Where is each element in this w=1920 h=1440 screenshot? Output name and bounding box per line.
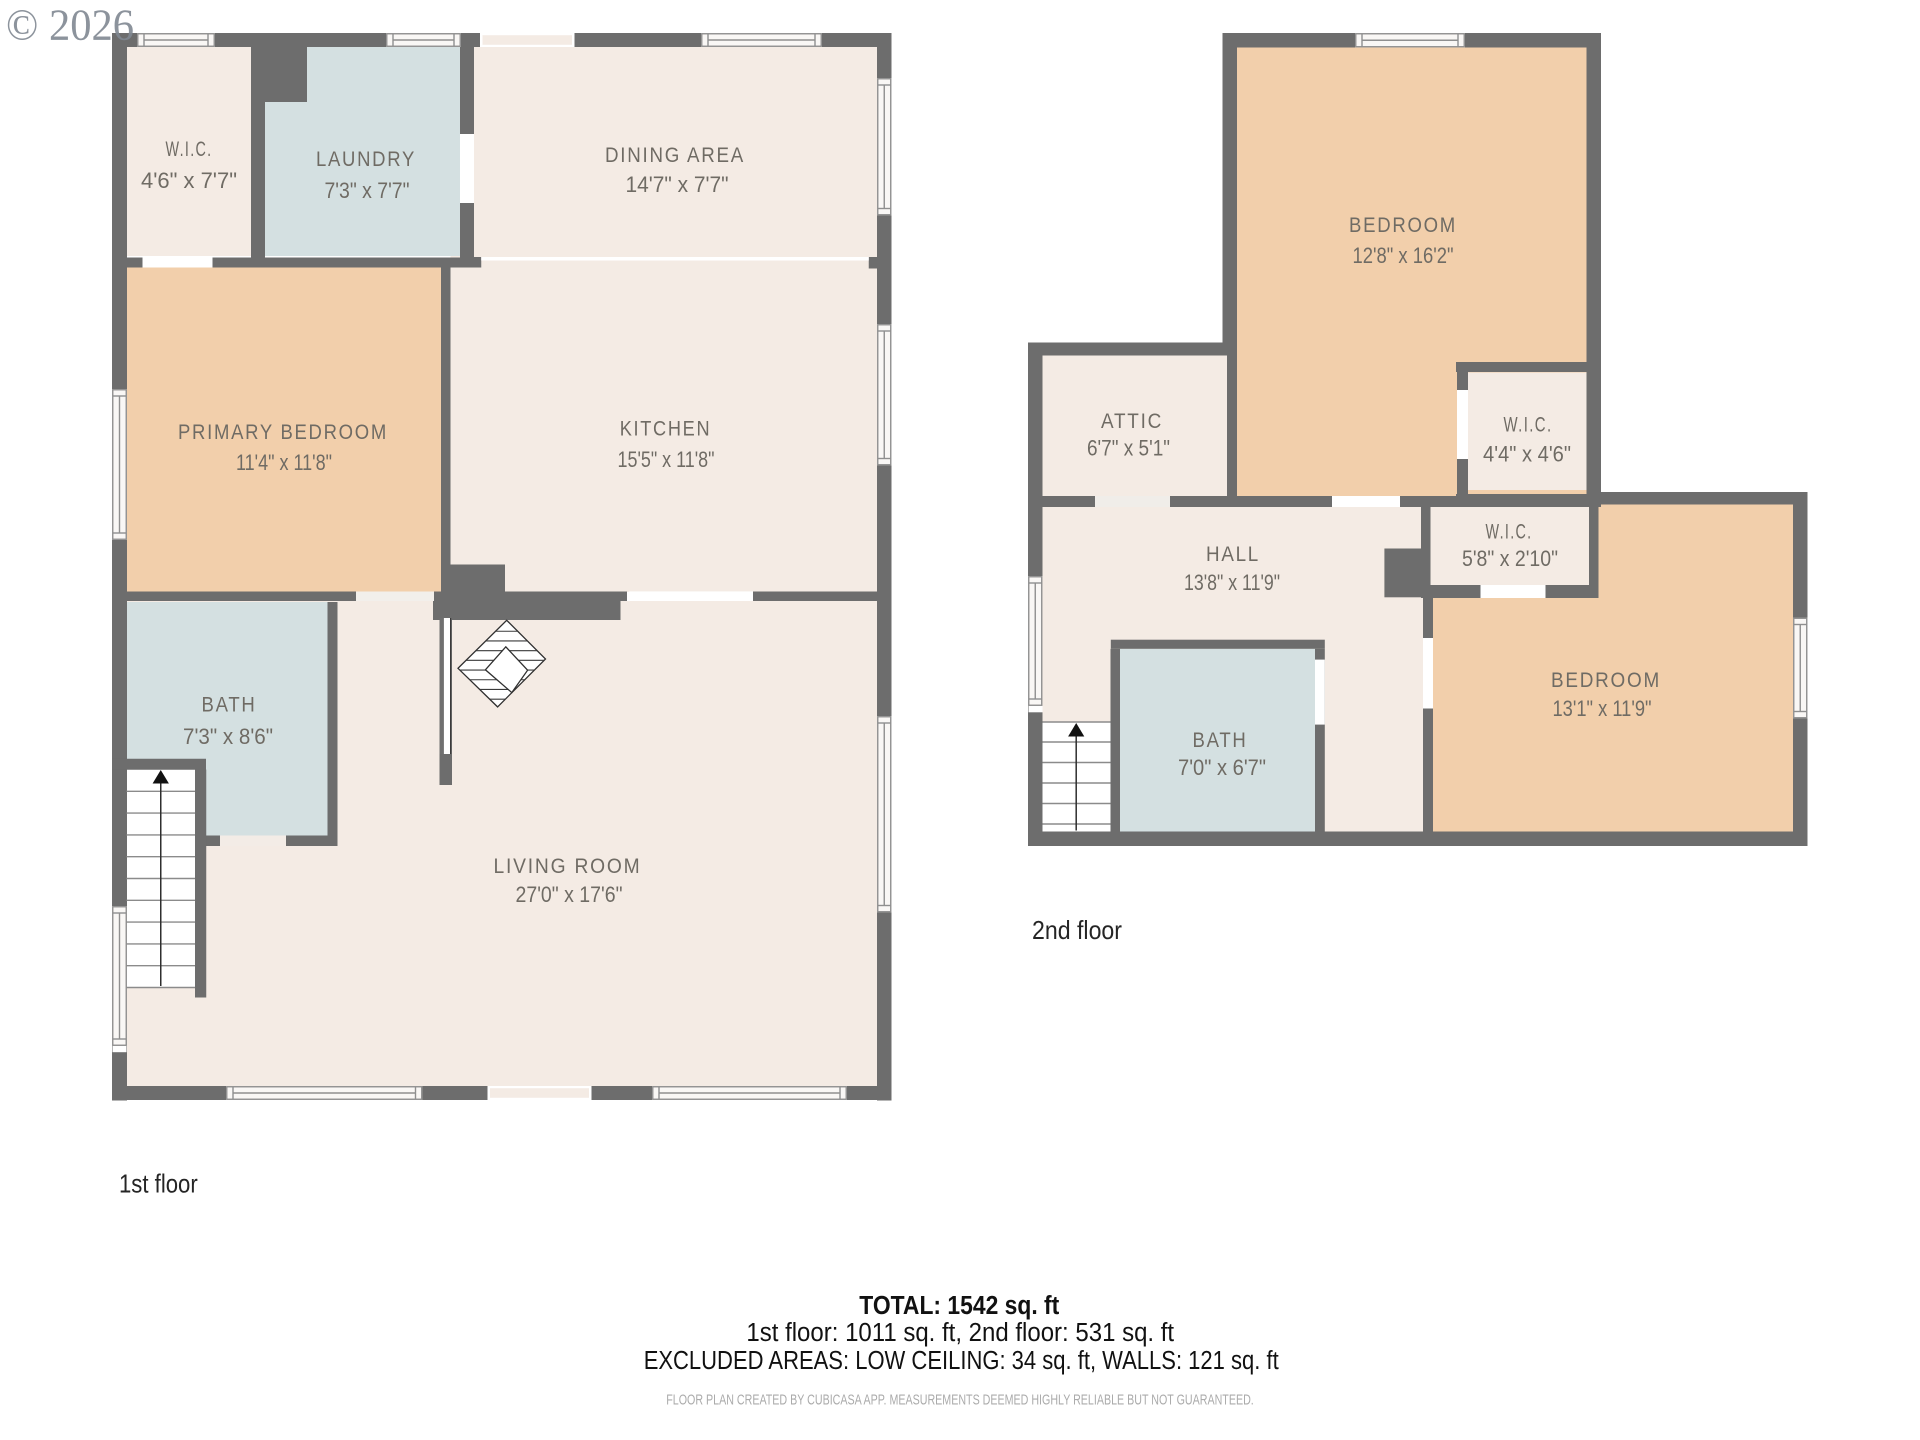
svg-text:W.I.C.: W.I.C. [166,137,213,161]
svg-text:15'5" x 11'8": 15'5" x 11'8" [618,447,715,472]
svg-text:11'4" x 11'8": 11'4" x 11'8" [236,450,332,475]
svg-text:EXCLUDED AREAS: LOW CEILING: 3: EXCLUDED AREAS: LOW CEILING: 34 sq. ft, … [644,1347,1279,1375]
svg-text:1st floor: 1011 sq. ft, 2nd fl: 1st floor: 1011 sq. ft, 2nd floor: 531 s… [746,1319,1174,1347]
svg-text:BATH: BATH [202,693,257,717]
svg-text:4'4" x 4'6": 4'4" x 4'6" [1483,442,1571,467]
svg-text:W.I.C.: W.I.C. [1504,413,1553,437]
svg-text:14'7" x 7'7": 14'7" x 7'7" [626,172,729,197]
svg-text:5'8" x 2'10": 5'8" x 2'10" [1462,546,1558,571]
svg-text:BEDROOM: BEDROOM [1551,668,1661,692]
svg-text:DINING AREA: DINING AREA [605,143,745,167]
svg-text:TOTAL: 1542 sq. ft: TOTAL: 1542 sq. ft [859,1292,1059,1320]
svg-text:4'6" x 7'7": 4'6" x 7'7" [141,168,237,193]
svg-text:W.I.C.: W.I.C. [1486,520,1533,544]
svg-text:HALL: HALL [1206,542,1260,566]
svg-text:ATTIC: ATTIC [1101,409,1163,433]
svg-text:6'7" x 5'1": 6'7" x 5'1" [1087,436,1170,461]
svg-text:13'1" x 11'9": 13'1" x 11'9" [1553,696,1652,721]
svg-text:BATH: BATH [1193,728,1248,752]
svg-text:LIVING ROOM: LIVING ROOM [494,854,642,878]
svg-text:7'3" x 8'6": 7'3" x 8'6" [183,724,273,749]
svg-text:27'0" x 17'6": 27'0" x 17'6" [516,882,623,907]
svg-text:12'8" x 16'2": 12'8" x 16'2" [1353,243,1454,268]
svg-text:2nd floor: 2nd floor [1032,915,1122,945]
svg-text:7'3" x 7'7": 7'3" x 7'7" [325,178,410,203]
svg-text:LAUNDRY: LAUNDRY [316,147,416,171]
svg-text:7'0" x 6'7": 7'0" x 6'7" [1178,755,1266,780]
svg-text:13'8" x 11'9": 13'8" x 11'9" [1184,570,1280,595]
svg-text:KITCHEN: KITCHEN [620,417,712,441]
svg-text:© 2026: © 2026 [6,1,134,50]
svg-text:1st floor: 1st floor [119,1169,198,1199]
svg-text:PRIMARY BEDROOM: PRIMARY BEDROOM [178,420,388,444]
svg-text:FLOOR PLAN CREATED BY CUBICASA: FLOOR PLAN CREATED BY CUBICASA APP. MEAS… [666,1393,1254,1409]
svg-text:BEDROOM: BEDROOM [1349,213,1457,237]
